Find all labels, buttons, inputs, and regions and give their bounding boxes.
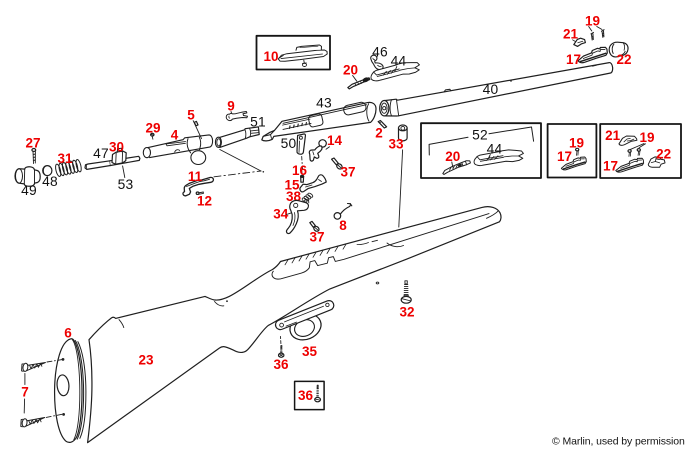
svg-text:48: 48 xyxy=(42,174,58,189)
svg-text:17: 17 xyxy=(566,52,581,67)
svg-text:37: 37 xyxy=(340,165,355,180)
svg-text:32: 32 xyxy=(399,305,414,320)
svg-text:36: 36 xyxy=(273,357,289,372)
svg-text:2: 2 xyxy=(375,125,383,140)
svg-text:23: 23 xyxy=(138,353,154,368)
svg-text:4: 4 xyxy=(171,127,179,142)
svg-text:© Marlin, used by permission: © Marlin, used by permission xyxy=(552,436,685,448)
svg-text:43: 43 xyxy=(316,96,332,111)
svg-text:19: 19 xyxy=(639,130,654,145)
svg-text:5: 5 xyxy=(187,108,195,123)
svg-text:14: 14 xyxy=(327,133,343,148)
svg-text:40: 40 xyxy=(483,82,499,97)
svg-text:7: 7 xyxy=(21,384,29,399)
svg-text:19: 19 xyxy=(585,13,600,28)
svg-text:27: 27 xyxy=(25,135,40,150)
svg-text:20: 20 xyxy=(445,149,460,164)
svg-text:46: 46 xyxy=(372,45,388,60)
svg-text:53: 53 xyxy=(118,177,134,192)
svg-text:17: 17 xyxy=(603,159,618,174)
svg-text:33: 33 xyxy=(388,137,404,152)
svg-text:36: 36 xyxy=(298,388,314,403)
svg-text:6: 6 xyxy=(64,326,72,341)
svg-text:10: 10 xyxy=(263,49,278,64)
svg-text:47: 47 xyxy=(93,146,109,161)
svg-text:29: 29 xyxy=(145,120,160,135)
svg-text:12: 12 xyxy=(197,194,212,209)
svg-text:16: 16 xyxy=(292,163,308,178)
svg-text:44: 44 xyxy=(487,141,503,156)
svg-text:31: 31 xyxy=(57,151,73,166)
svg-text:22: 22 xyxy=(656,147,671,162)
svg-text:50: 50 xyxy=(281,136,297,151)
svg-text:8: 8 xyxy=(339,218,347,233)
svg-text:51: 51 xyxy=(250,115,266,130)
svg-text:20: 20 xyxy=(343,62,358,77)
svg-text:21: 21 xyxy=(605,128,621,143)
svg-text:35: 35 xyxy=(302,344,318,359)
svg-text:49: 49 xyxy=(21,183,37,198)
svg-text:37: 37 xyxy=(309,230,324,245)
svg-text:44: 44 xyxy=(391,53,407,68)
svg-text:22: 22 xyxy=(616,52,631,67)
svg-text:52: 52 xyxy=(472,128,488,143)
svg-text:30: 30 xyxy=(109,139,124,154)
svg-text:11: 11 xyxy=(188,169,203,184)
svg-text:21: 21 xyxy=(563,26,579,41)
svg-text:17: 17 xyxy=(557,149,572,164)
